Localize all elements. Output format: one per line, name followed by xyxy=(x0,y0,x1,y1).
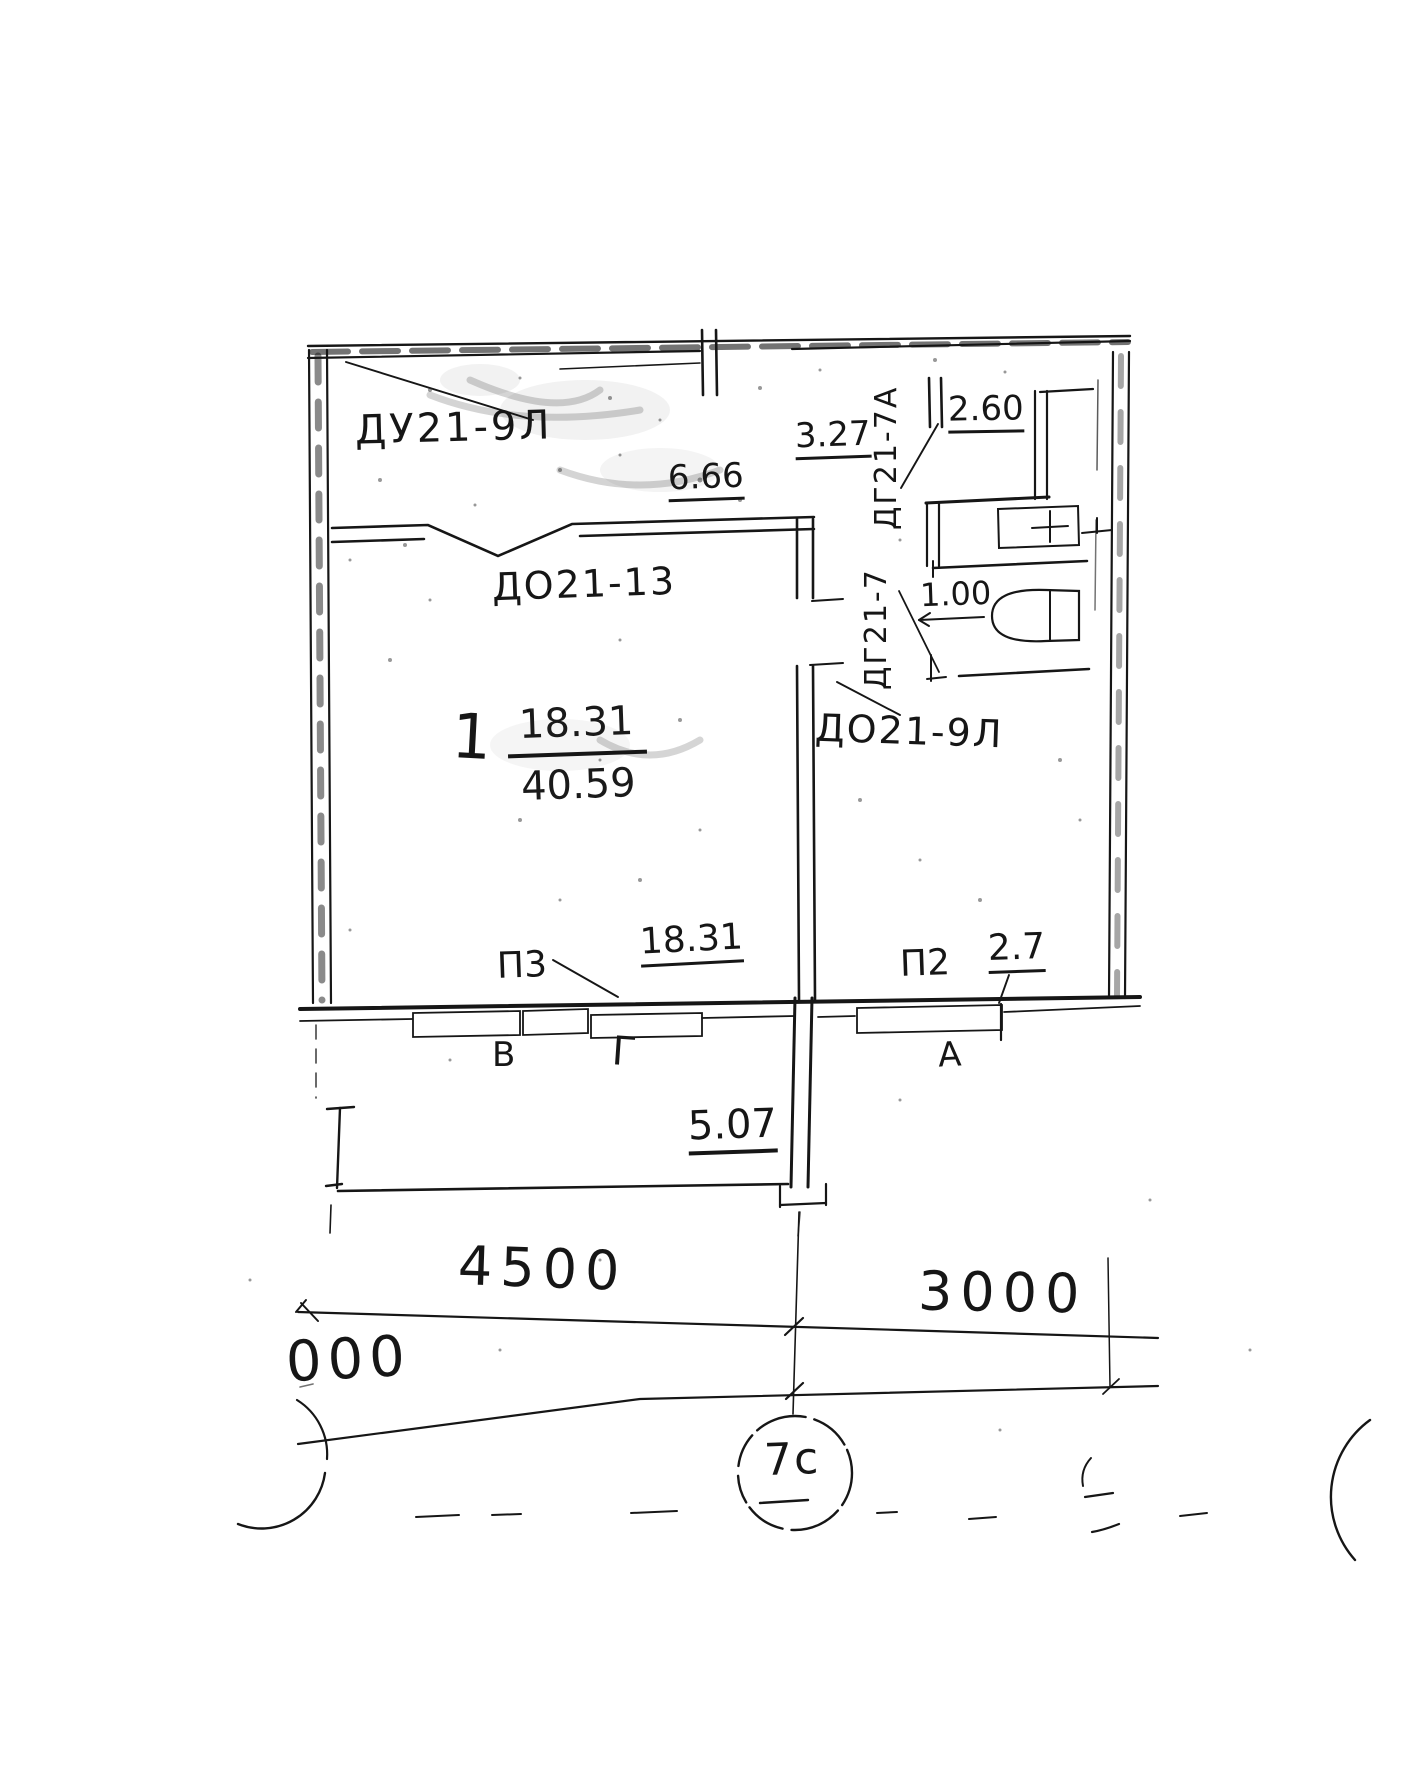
window-mark-g: Г xyxy=(611,1031,638,1073)
dim-3-27: 3.27 xyxy=(794,417,871,461)
dim-000-cut: 000 xyxy=(285,1329,413,1391)
dim-18-31: 18.31 xyxy=(639,919,744,967)
dim-2-7: 2.7 xyxy=(987,929,1046,974)
dim-6-66: 6.66 xyxy=(667,459,744,503)
door-label-dg21-7a: ДГ21-7А xyxy=(872,386,902,530)
room-area-fraction: 18.31 40.59 xyxy=(506,698,648,811)
window-frame xyxy=(591,1013,702,1038)
scanned-floorplan-page: ДУ21-9Л 6.66 3.27 ДГ21-7А 2.60 ДО21-13 1… xyxy=(0,0,1412,1780)
floorplan-drawing xyxy=(0,0,1412,1780)
dim-3000: 3000 xyxy=(918,1265,1088,1322)
dim-2-60: 2.60 xyxy=(948,391,1024,433)
dim-1-00: 1.00 xyxy=(919,577,991,611)
toilet xyxy=(992,590,1079,641)
room-number: 1 xyxy=(450,705,493,769)
balcony-front xyxy=(338,1184,788,1191)
bottom-wall xyxy=(300,997,1140,1098)
room-area-total: 40.59 xyxy=(508,754,648,811)
window-mark-v: В xyxy=(492,1038,515,1072)
window-frame xyxy=(413,1011,520,1037)
door-label-dg21-7: ДГ21-7 xyxy=(862,568,892,690)
axis-bubble-left-partial xyxy=(297,1400,327,1459)
axis-label-7c: 7с xyxy=(763,1437,821,1483)
dimension-lines xyxy=(296,1212,1158,1444)
room-area-living: 18.31 xyxy=(506,698,646,759)
dim-4500: 4500 xyxy=(457,1239,628,1299)
axis-bubble-right-partial xyxy=(1331,1420,1370,1560)
room1-top-wall xyxy=(332,517,814,556)
axis-line-7c xyxy=(793,1212,799,1414)
door-label-du21-9l: ДУ21-9Л xyxy=(355,405,553,450)
window-mark-p3: П3 xyxy=(496,947,547,985)
window-mark-a: А xyxy=(937,1037,962,1072)
window-label-do21-13: ДО21-13 xyxy=(491,562,676,606)
door-label-do21-9l: ДО21-9Л xyxy=(814,709,1004,754)
right-outer-wall xyxy=(1095,352,1129,998)
window-frame xyxy=(857,1005,1002,1033)
window-mark-p2: П2 xyxy=(899,945,950,983)
axis-line-right xyxy=(1108,1258,1110,1387)
left-outer-wall xyxy=(309,350,331,1003)
window-frame xyxy=(523,1009,588,1035)
dim-5-07: 5.07 xyxy=(687,1103,778,1155)
axis-bubble-mid-fragments xyxy=(1082,1458,1091,1486)
interior-wall xyxy=(797,519,843,1000)
